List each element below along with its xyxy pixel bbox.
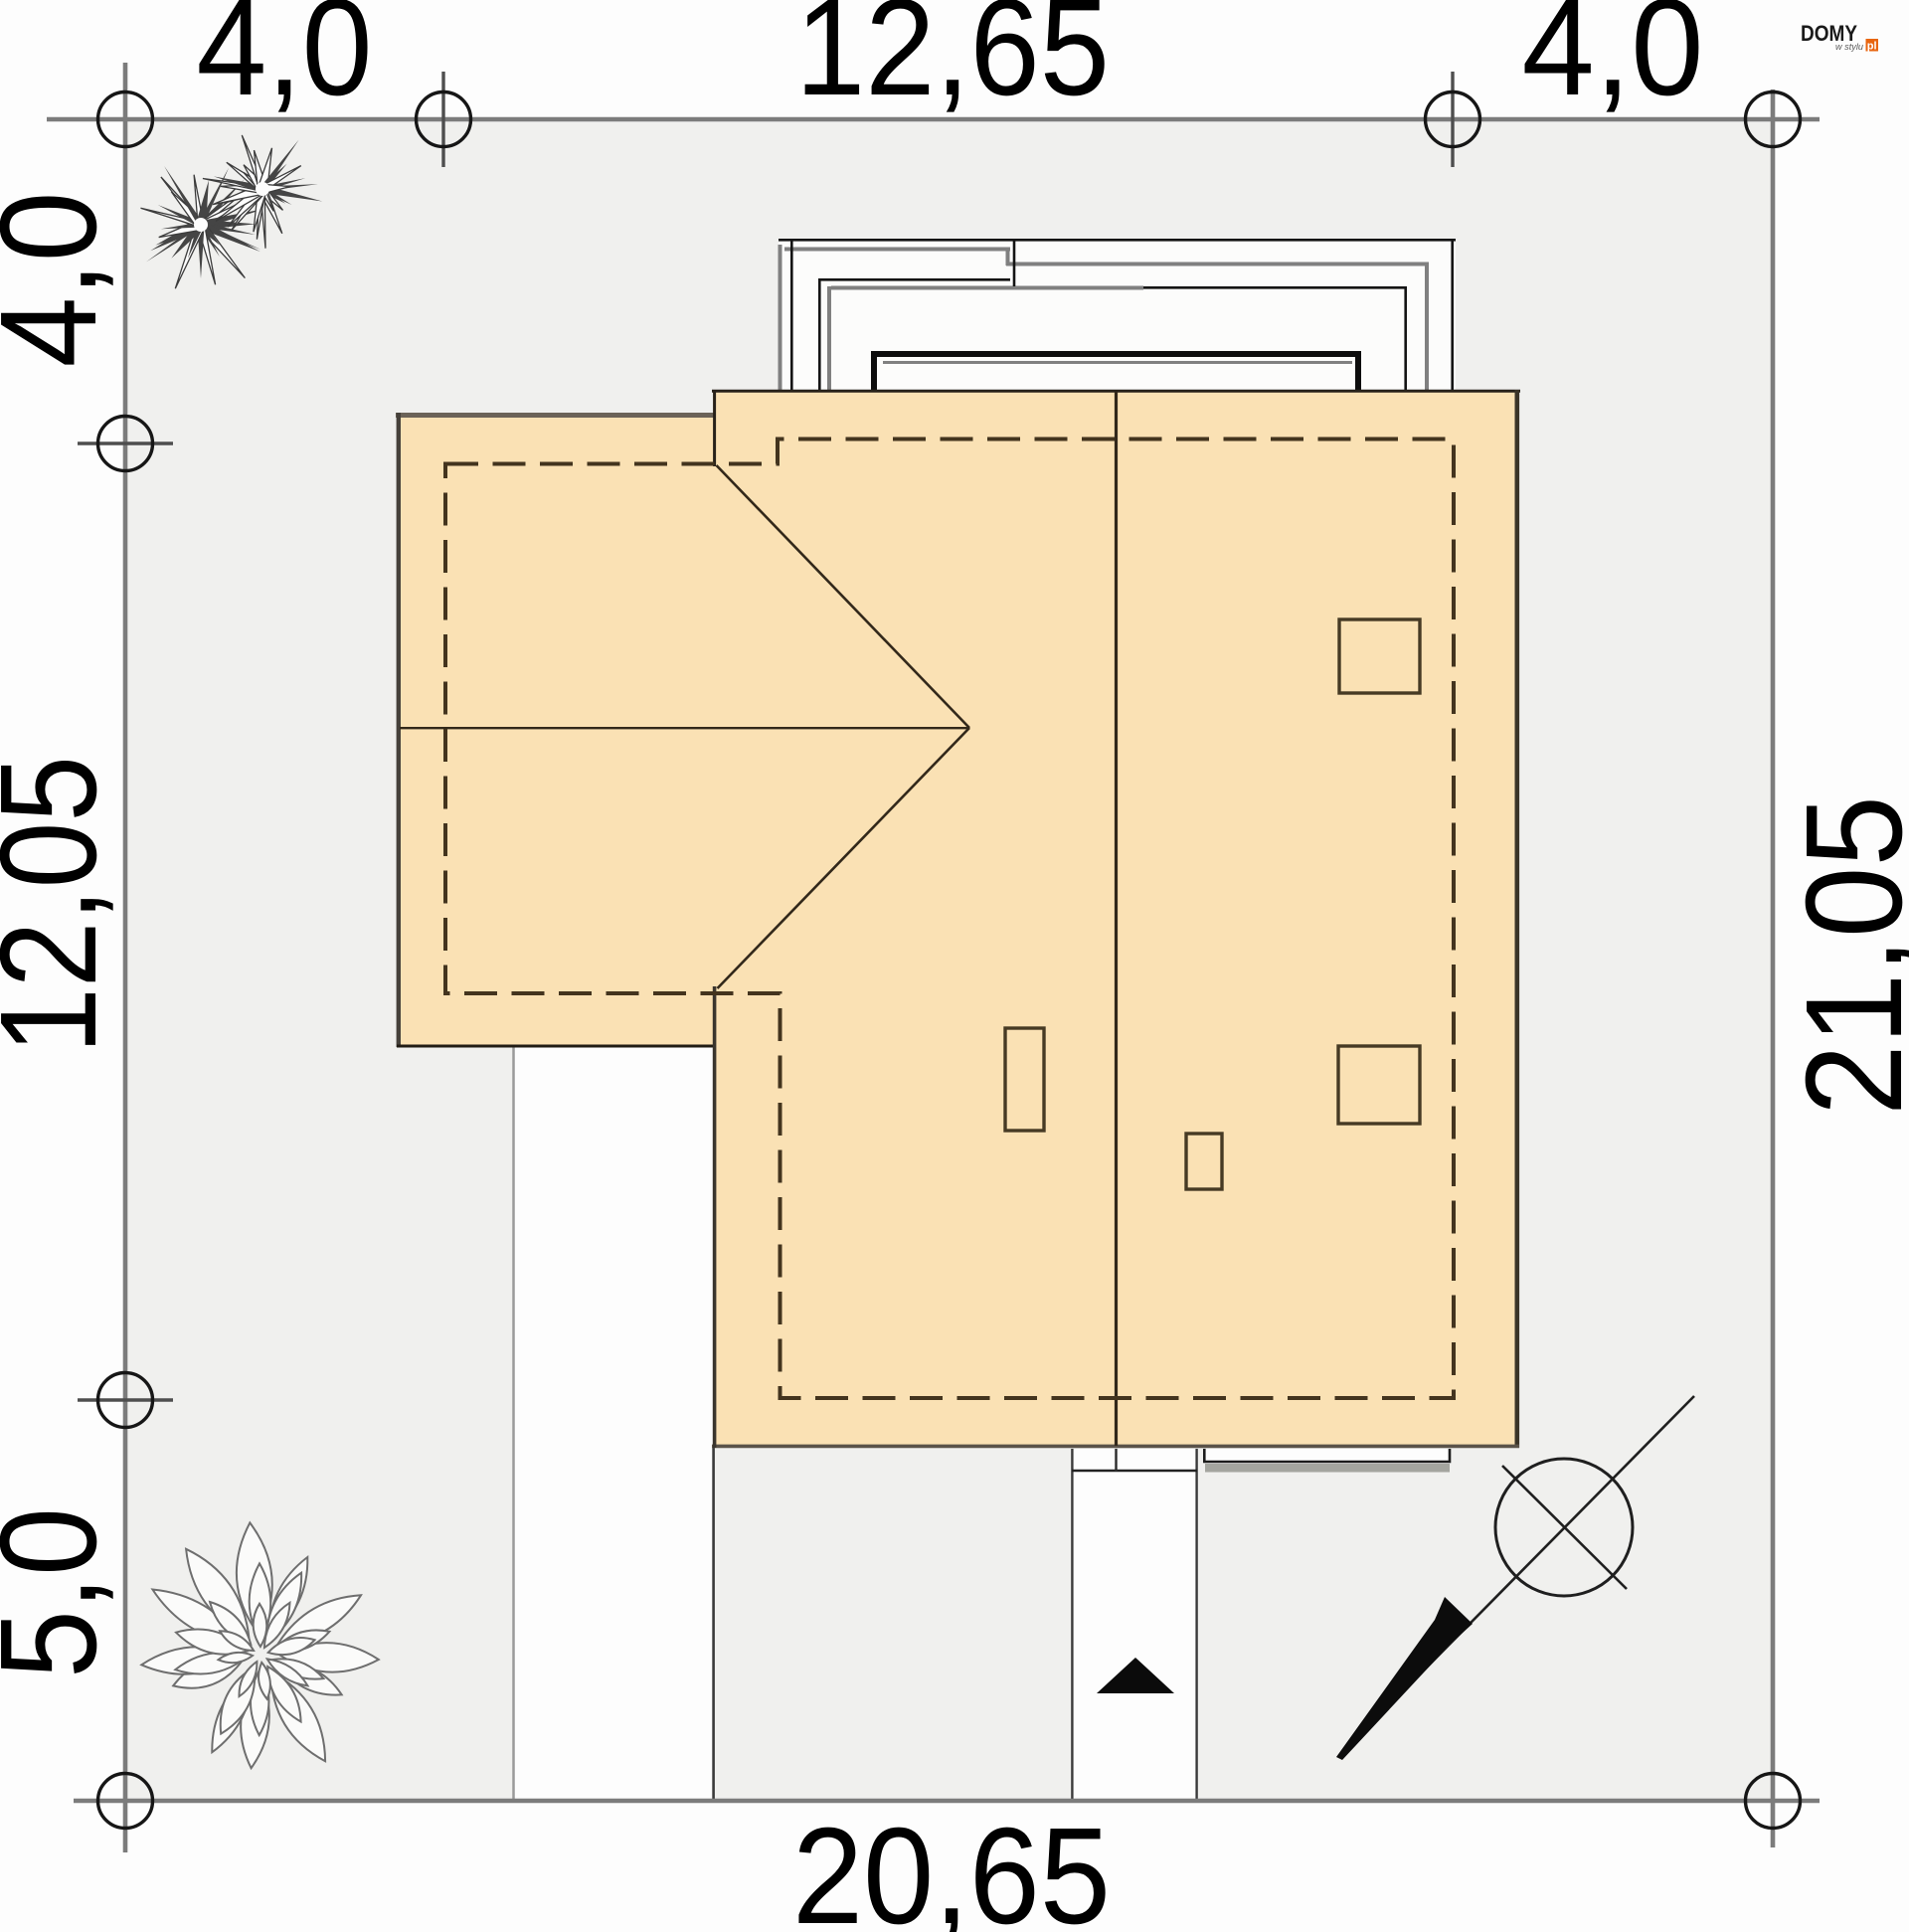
svg-text:4,0: 4,0 <box>0 192 125 368</box>
svg-text:12,05: 12,05 <box>0 756 125 1054</box>
svg-text:4,0: 4,0 <box>197 0 373 124</box>
svg-text:21,05: 21,05 <box>1778 795 1909 1116</box>
svg-text:12,65: 12,65 <box>795 0 1110 124</box>
svg-text:5,0: 5,0 <box>0 1507 125 1678</box>
svg-text:w stylu: w stylu <box>1835 42 1864 53</box>
svg-text:pl: pl <box>1867 40 1877 52</box>
svg-text:4,0: 4,0 <box>1522 0 1704 124</box>
svg-text:20,65: 20,65 <box>792 1800 1111 1932</box>
